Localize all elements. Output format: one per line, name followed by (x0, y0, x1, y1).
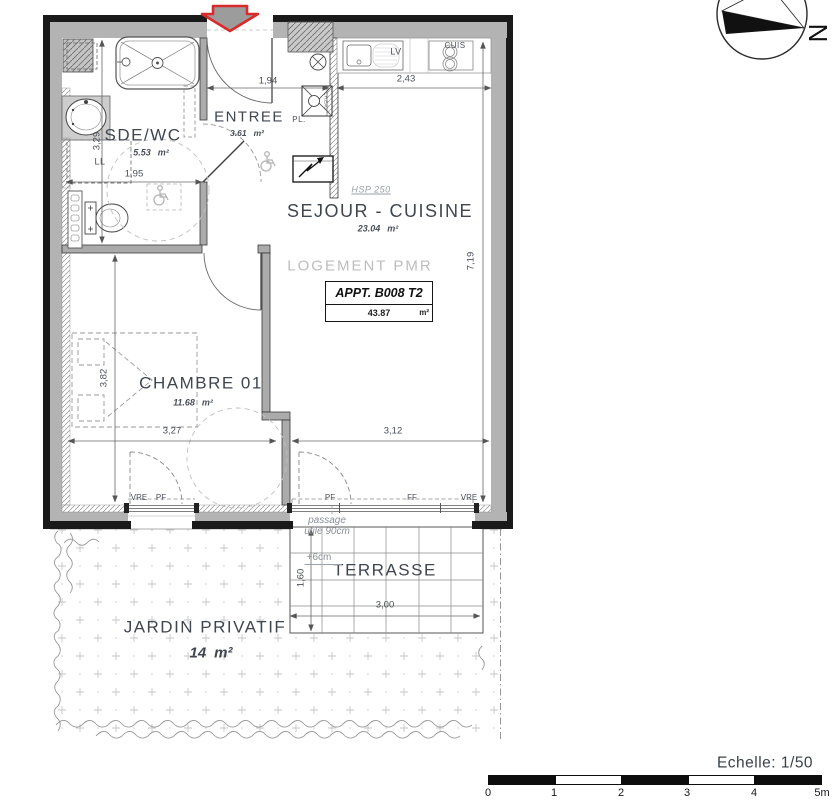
dim-cuisine-width: 2,43 (397, 74, 416, 84)
sejour-bay-window (287, 499, 479, 513)
scale-label: Echelle: 1/50 (717, 755, 813, 771)
washing-machine-label: LL (94, 158, 105, 167)
shower (116, 37, 199, 89)
window-label-sejour-door: PF (325, 494, 335, 502)
water-heater-label: CH.EAU (323, 92, 328, 109)
scale-tick-2: 2 (618, 787, 624, 799)
scale-tick-5: 5m (814, 787, 829, 799)
scale-segment (622, 776, 688, 784)
dim-sejour-depth: 7,19 (466, 252, 476, 271)
closet-label: PL. (292, 116, 306, 124)
scale-segment (555, 776, 623, 784)
terrasse-area (290, 527, 483, 633)
apartment-total-area: 43.87m² (326, 305, 432, 321)
apartment-id-box: APPT. B008 T2 43.87m² (325, 281, 433, 322)
ventilation-unit (288, 22, 333, 70)
room-area-entree: 3.61m² (230, 129, 264, 138)
dim-terrasse-width: 3,00 (376, 600, 395, 610)
north-label: N (805, 24, 831, 43)
room-label-chambre: CHAMBRE 01 (139, 375, 263, 392)
scale-tick-0: 0 (485, 787, 491, 799)
scale-tick-4: 4 (751, 787, 757, 799)
window-label-sejour-fixed: FF (407, 494, 417, 502)
ceiling-height-note: HSP 250 (351, 186, 390, 195)
cooktop-label: CUIS (444, 42, 465, 50)
radiator (68, 191, 82, 248)
room-area-jardin: 14m² (189, 646, 232, 661)
window-label-chambre-shutter: VRE (131, 494, 147, 502)
dim-sde-wc-width: 1,95 (125, 169, 144, 179)
window-label-chambre-door: PF (156, 494, 166, 502)
wheelchair-icon (261, 152, 275, 171)
room-label-terrasse: TERRASSE (333, 562, 437, 579)
pmr-dwelling-label: LOGEMENT PMR (287, 259, 432, 274)
room-label-jardin: JARDIN PRIVATIF (124, 619, 287, 636)
dim-terrasse-depth: 1,60 (296, 569, 306, 588)
dim-sejour-width: 3,12 (384, 426, 403, 436)
scale-segment (755, 776, 821, 784)
dim-entree-width: 1,94 (259, 76, 278, 86)
washbasin (62, 96, 110, 140)
technical-shaft (63, 39, 97, 72)
room-label-sejour-cuisine: SEJOUR - CUISINE (287, 202, 473, 220)
window-label-sejour-shutter: VRE (461, 494, 477, 502)
scale-bar (488, 775, 822, 785)
apartment-id: APPT. B008 T2 (326, 282, 432, 305)
scale-tick-3: 3 (684, 787, 690, 799)
wheelchair-icon-sde (147, 184, 181, 210)
passage-note-line2: utile 90cm (304, 527, 350, 537)
floor-plan-sheet: SDE/WC 5.53m² ENTREE 3.61m² HSP 250 SEJO… (0, 0, 839, 800)
floor-offset-note: +6cm (305, 553, 342, 565)
kitchen-counter (337, 38, 491, 73)
entrance-arrow (202, 6, 258, 31)
electrical-panel (293, 156, 333, 182)
floor-plan-drawing (0, 0, 839, 800)
room-area-sejour-cuisine: 23.04m² (358, 225, 399, 234)
north-arrow-compass (717, 0, 807, 59)
room-area-chambre: 11.68m² (173, 399, 213, 408)
scale-segment (489, 776, 555, 784)
room-label-entree: ENTREE (214, 110, 284, 125)
dishwasher-label: LV (390, 48, 401, 57)
scale-segment (688, 776, 756, 784)
bedroom-door (204, 253, 261, 310)
pmr-turning-circles (107, 139, 287, 508)
exterior-walls (43, 15, 513, 529)
scale-tick-1: 1 (551, 787, 557, 799)
toilet (85, 202, 128, 234)
dim-chambre-width: 3,27 (163, 426, 182, 436)
room-label-sde-wc: SDE/WC (105, 127, 182, 144)
entrance-door (207, 38, 272, 103)
passage-note-line1: passage (308, 516, 346, 526)
dim-chambre-depth: 3,82 (99, 369, 109, 388)
room-area-sde-wc: 5.53m² (133, 149, 169, 158)
dim-sde-wc-depth: 3,29 (92, 132, 102, 151)
